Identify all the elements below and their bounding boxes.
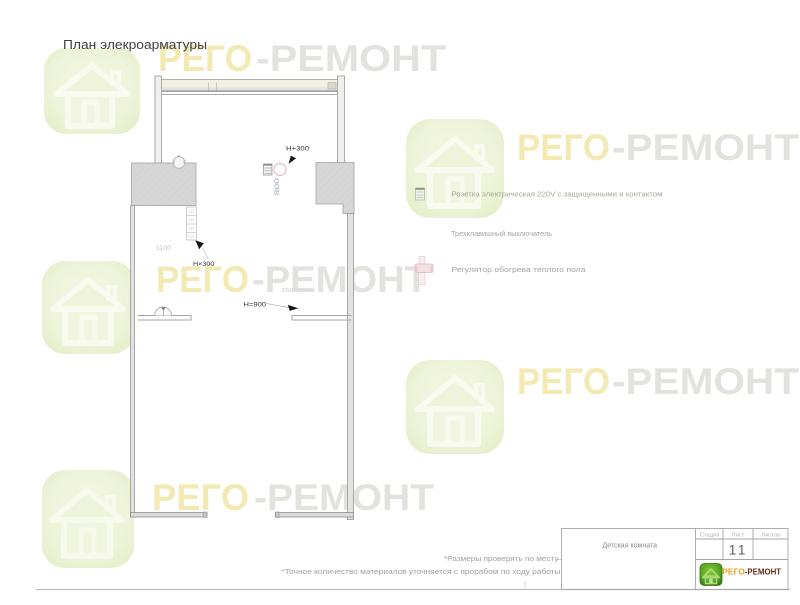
svg-text:Стадия: Стадия: [700, 533, 720, 539]
svg-text:*Размеры проверять по месту: *Размеры проверять по месту: [444, 555, 559, 563]
svg-text:-РЕМОНТ: -РЕМОНТ: [612, 361, 799, 402]
svg-text:1100: 1100: [156, 246, 172, 252]
svg-text:-РЕМОНТ: -РЕМОНТ: [612, 127, 799, 168]
svg-text:150: 150: [281, 288, 293, 294]
svg-text:Регулятор обогрева теплого пол: Регулятор обогрева теплого пола: [452, 265, 586, 274]
svg-text:РЕГО: РЕГО: [152, 477, 249, 518]
svg-text:-РЕМОНТ: -РЕМОНТ: [745, 567, 782, 577]
svg-text:Розетка электрическая 220V с: Розетка электрическая 220V с защищенными…: [452, 190, 663, 199]
svg-text:Н=900: Н=900: [244, 302, 267, 309]
svg-text:-РЕМОНТ: -РЕМОНТ: [256, 38, 446, 79]
svg-text:-РЕМОНТ: -РЕМОНТ: [252, 259, 428, 300]
svg-text:РЕГО: РЕГО: [517, 127, 610, 168]
svg-text:Лист: Лист: [732, 533, 745, 539]
svg-text:*Точное количество материалов: *Точное количество материалов уточняется…: [282, 568, 561, 576]
svg-text:Детская комната: Детская комната: [603, 543, 658, 550]
svg-text:800: 800: [274, 177, 281, 195]
svg-text:Н+300: Н+300: [286, 146, 310, 153]
svg-text:РЕГО: РЕГО: [722, 567, 745, 577]
svg-text:РЕГО: РЕГО: [517, 361, 610, 402]
svg-text:План элекроарматуры: План элекроарматуры: [63, 37, 207, 52]
svg-text:-РЕМОНТ: -РЕМОНТ: [254, 477, 434, 518]
svg-text:Н×300: Н×300: [193, 261, 215, 268]
svg-text:Листов: Листов: [761, 533, 780, 539]
svg-text:11: 11: [729, 542, 748, 557]
svg-text:Трехклавишный выключатель: Трехклавишный выключатель: [451, 229, 552, 238]
